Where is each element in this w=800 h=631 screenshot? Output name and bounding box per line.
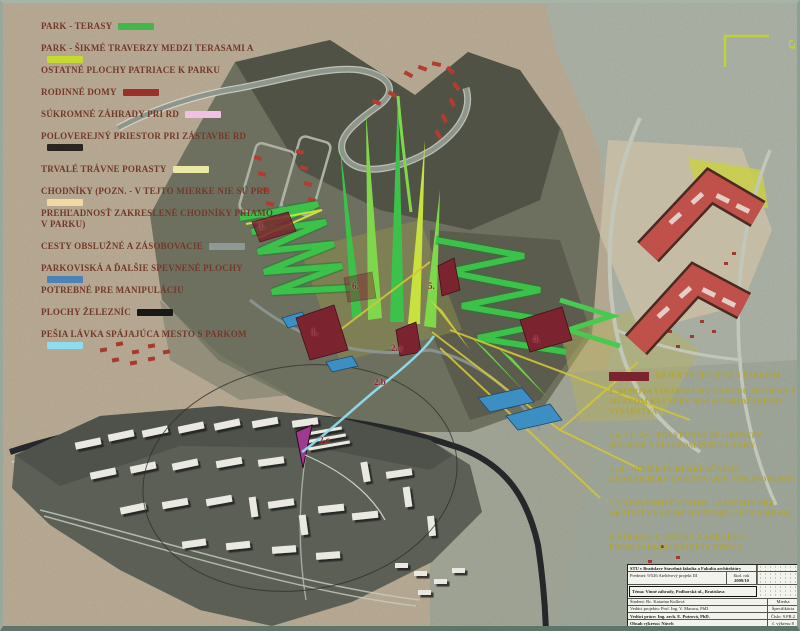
- legend-item-0: PARK - TERASY: [41, 21, 279, 32]
- legend-color-swatch: [47, 276, 83, 283]
- masterplan-poster: PARK - TERASYPARK - ŠIKMÉ TRAVERZY MEDZI…: [0, 0, 800, 631]
- legend-item-label-line2: POTREBNÉ PRE MANIPULÁCIU: [41, 285, 184, 295]
- legend-item-label: SÚKROMNÉ ZÁHRADY PRI RD: [41, 109, 179, 119]
- titleblock-institution: STU v Bratislave Stavebná fakulta a Faku…: [628, 565, 757, 571]
- map-marker-2c: 2.c: [319, 435, 330, 445]
- annotation-item-0: 1. BUDOVA VINÁRSKEHO ZÁVODU SPOJENÁ S MÚ…: [609, 387, 800, 417]
- annotation-heading: OBJEKTY SPOJENÉ S PARKOM: [609, 371, 800, 381]
- legend-item-1: PARK - ŠIKMÉ TRAVERZY MEDZI TERASAMI AOS…: [41, 43, 279, 76]
- legend-color-swatch: [47, 144, 83, 151]
- legend-color-swatch: [118, 23, 154, 30]
- titleblock-supervisor: Vedúci projektu: Prof. Ing. V. Macura, P…: [628, 606, 768, 612]
- map-marker-1: 1.: [311, 327, 318, 337]
- titleblock-spec-label: Špecifikácia: [768, 606, 798, 612]
- north-indicator: S: [717, 29, 795, 73]
- titleblock-subject: Predmet: 9/526 Ateliérový projekt III: [628, 572, 727, 583]
- titleblock-stamp-area: [757, 565, 798, 571]
- legend-item-6: CHODNÍKY (pozn. - v tejto mierke nie sú …: [41, 186, 279, 230]
- map-marker-6: 6.: [352, 281, 359, 291]
- titleblock-theme: Téma: Vinné záhrady, Podhorská ul., Brat…: [629, 586, 757, 597]
- legend-item-8: PARKOVISKÁ A ĎALŠIE SPEVNENÉ PLOCHYPOTRE…: [41, 263, 279, 296]
- legend-item-label: PARKOVISKÁ A ĎALŠIE SPEVNENÉ PLOCHY: [41, 263, 243, 273]
- legend-item-label: CESTY OBSLUŽNÉ A ZÁSOBOVACIE: [41, 241, 203, 251]
- legend-color-swatch: [137, 309, 173, 316]
- titleblock-student: Študent: Bc. Katarína Kullová: [628, 599, 768, 605]
- annotation-heading-label: OBJEKTY SPOJENÉ S PARKOM: [655, 371, 780, 380]
- titleblock-scale-label: Mierka: [768, 599, 798, 605]
- annotation-item-1: 2.a, 2.b, 2.c - POLYFUNKČNÉ OBJEKTY SPOJ…: [609, 431, 800, 451]
- legend-color-swatch: [47, 56, 83, 63]
- legend-item-4: POLOVEREJNÝ PRIESTOR PRI ZÁSTAVBE RD: [41, 131, 279, 153]
- legend-color-swatch: [47, 199, 83, 206]
- north-bracket-icon: [725, 36, 769, 67]
- legend-item-label: CHODNÍKY (pozn. - v tejto mierke nie sú …: [41, 186, 269, 196]
- legend-color-swatch: [185, 111, 221, 118]
- object-annotations: OBJEKTY SPOJENÉ S PARKOM 1. BUDOVA VINÁR…: [609, 371, 800, 567]
- titleblock-year: 2009/10: [729, 578, 754, 583]
- titleblock-number: Číslo: 9.FR.2: [768, 613, 798, 619]
- legend-item-label: TRVALÉ TRÁVNE PORASTY: [41, 164, 167, 174]
- titleblock-advisor: Vedúci práce: Ing. arch. E. Putrová, PhD…: [628, 613, 768, 619]
- map-marker-4: 4.: [533, 334, 540, 344]
- legend-color-swatch: [123, 89, 159, 96]
- annotation-item-3: 5. VYBAVENOSŤ V LOME - ZÁZEMIE PRE AKTIV…: [609, 499, 800, 519]
- legend-color-swatch: [173, 166, 209, 173]
- legend-item-label-line2: prehľadnosť zakreslené chodníky priamo v…: [41, 208, 273, 229]
- legend: PARK - TERASYPARK - ŠIKMÉ TRAVERZY MEDZI…: [41, 21, 279, 362]
- legend-item-label: PARK - TERASY: [41, 21, 112, 31]
- annotation-item-4: 6. PIVNICA V AREÁLI ZÁHRADY S PREHLIADKO…: [609, 533, 800, 553]
- map-marker-2a: 2.a: [391, 343, 402, 353]
- legend-color-swatch: [47, 342, 83, 349]
- legend-item-10: PEŠIA LÁVKA SPÁJAJÚCA MESTO S PARKOM: [41, 329, 279, 351]
- titleblock-sheet: č. výkresu 8: [768, 620, 798, 627]
- legend-color-swatch: [209, 243, 245, 250]
- legend-item-7: CESTY OBSLUŽNÉ A ZÁSOBOVACIE: [41, 241, 279, 252]
- objects-swatch: [609, 372, 649, 381]
- annotation-item-2: 3., 4. - OBJEKTY REKREAČNÉHO CHARAKTERU …: [609, 465, 800, 485]
- legend-item-label: POLOVEREJNÝ PRIESTOR PRI ZÁSTAVBE RD: [41, 131, 246, 141]
- legend-item-label: PLOCHY ŽELEZNÍC: [41, 307, 131, 317]
- titleblock-content: Obsah výkresu: Návrh: [628, 620, 768, 627]
- north-label: S: [784, 39, 795, 50]
- legend-item-label: PEŠIA LÁVKA SPÁJAJÚCA MESTO S PARKOM: [41, 329, 247, 339]
- legend-item-3: SÚKROMNÉ ZÁHRADY PRI RD: [41, 109, 279, 120]
- legend-item-9: PLOCHY ŽELEZNÍC: [41, 307, 279, 318]
- legend-item-label: RODINNÉ DOMY: [41, 87, 117, 97]
- titleblock-stamp-area3: [758, 585, 798, 598]
- map-marker-5: 5.: [428, 281, 435, 291]
- titleblock-stamp-area2: [757, 572, 798, 583]
- legend-item-5: TRVALÉ TRÁVNE PORASTY: [41, 164, 279, 175]
- title-block: STU v Bratislave Stavebná fakulta a Faku…: [627, 564, 799, 628]
- legend-item-label-line2: OSTATNÉ PLOCHY PATRIACE K PARKU: [41, 65, 220, 75]
- legend-item-2: RODINNÉ DOMY: [41, 87, 279, 98]
- legend-item-label: PARK - ŠIKMÉ TRAVERZY MEDZI TERASAMI A: [41, 43, 254, 53]
- map-marker-2b: 2.b: [374, 377, 386, 387]
- map-marker-3: 3.: [258, 221, 265, 231]
